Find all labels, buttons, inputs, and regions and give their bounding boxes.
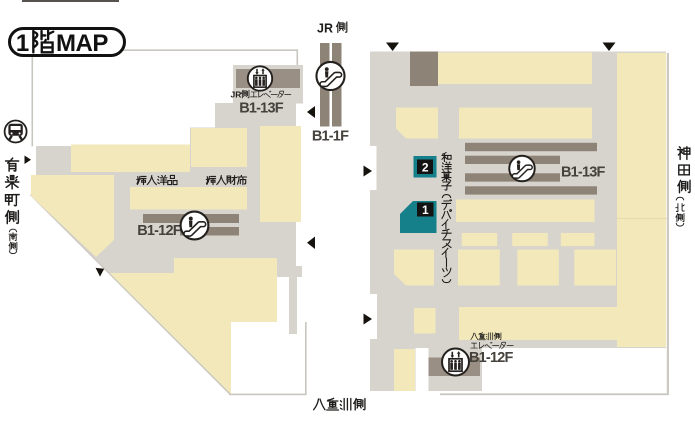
svg-text:JR: JR — [317, 21, 333, 35]
svg-text:1: 1 — [16, 30, 29, 57]
svg-text:B1-12F: B1-12F — [469, 350, 513, 366]
svg-text:B1-13F: B1-13F — [239, 101, 283, 117]
svg-text:MAP: MAP — [56, 30, 108, 57]
svg-text:B1-12F: B1-12F — [137, 223, 181, 239]
svg-text:JR: JR — [231, 90, 242, 100]
svg-text:B1-1F: B1-1F — [312, 129, 349, 145]
svg-text:2: 2 — [422, 160, 429, 174]
svg-text:B1-13F: B1-13F — [561, 165, 605, 181]
svg-text:1: 1 — [422, 203, 429, 217]
